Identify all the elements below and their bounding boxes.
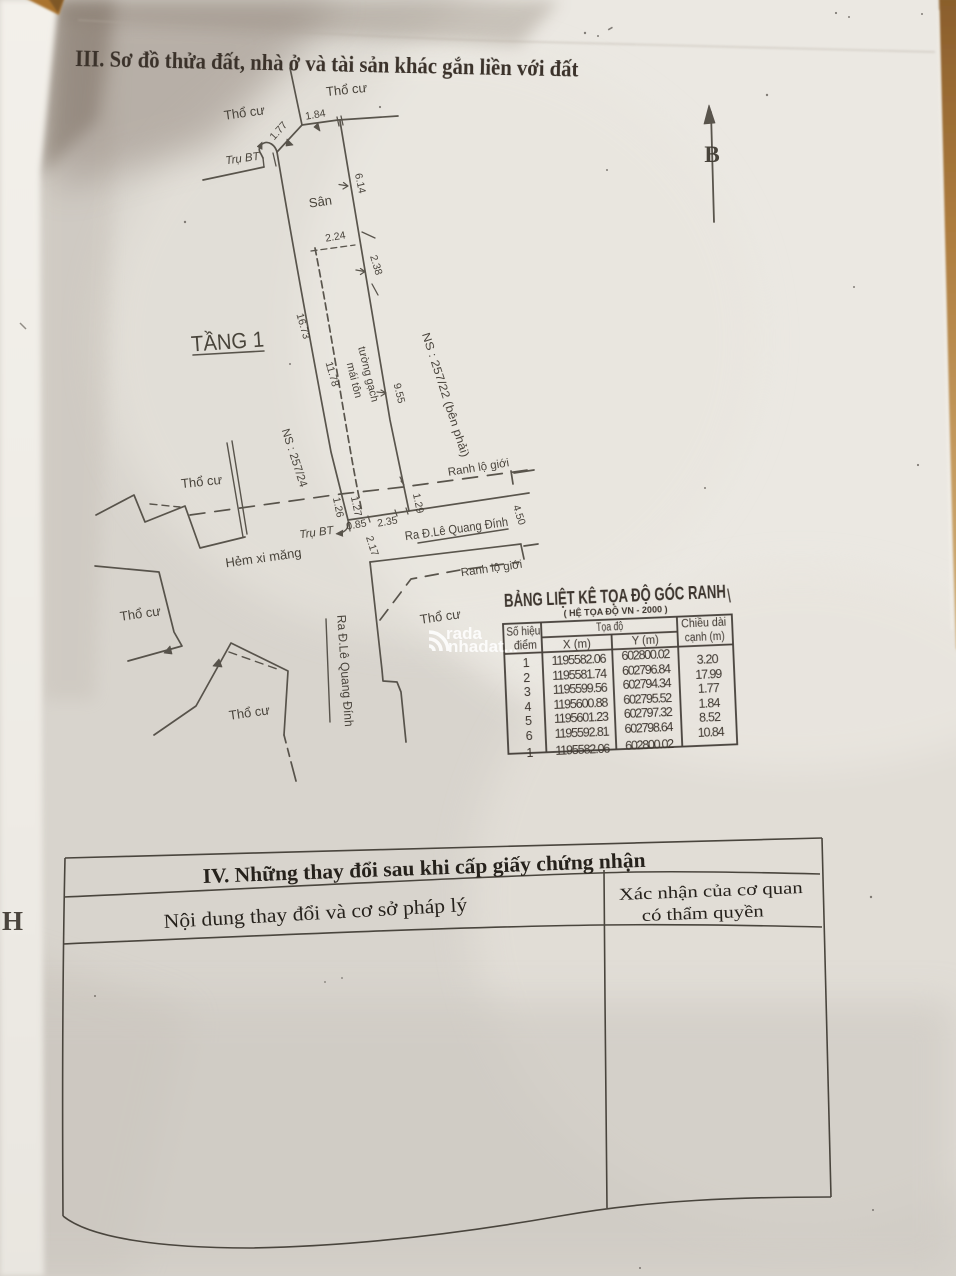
svg-text:1195582.06: 1195582.06: [551, 652, 607, 668]
svg-text:10.84: 10.84: [697, 725, 725, 740]
svg-text:Sân: Sân: [308, 193, 333, 211]
svg-text:8.52: 8.52: [699, 710, 722, 725]
svg-text:1195582.06: 1195582.06: [555, 742, 611, 758]
svg-text:602794.34: 602794.34: [622, 676, 672, 692]
svg-text:17.99: 17.99: [695, 667, 723, 682]
svg-text:1.84: 1.84: [698, 696, 721, 711]
svg-text:3.20: 3.20: [696, 652, 719, 667]
svg-text:1: 1: [526, 746, 534, 760]
svg-text:TẦNG 1: TẦNG 1: [190, 327, 265, 357]
svg-text:602800.02: 602800.02: [621, 647, 671, 663]
svg-text:1195601.23: 1195601.23: [554, 710, 610, 726]
svg-text:nhadat...: nhadat...: [448, 637, 518, 656]
svg-text:1.77: 1.77: [698, 681, 721, 696]
svg-text:602797.32: 602797.32: [624, 705, 674, 721]
svg-text:4: 4: [524, 700, 532, 714]
svg-text:X (m): X (m): [563, 638, 592, 651]
svg-text:Y (m): Y (m): [632, 634, 660, 647]
svg-text:Tọa độ: Tọa độ: [596, 621, 623, 634]
svg-text:B: B: [704, 142, 719, 167]
svg-text:3: 3: [524, 685, 532, 699]
svg-text:H: H: [2, 906, 23, 936]
svg-text:1195599.56: 1195599.56: [553, 681, 609, 697]
svg-text:2: 2: [523, 671, 531, 685]
svg-text:602800.02: 602800.02: [625, 737, 675, 753]
svg-text:6: 6: [525, 729, 533, 743]
svg-text:1: 1: [522, 656, 530, 670]
svg-text:602798.64: 602798.64: [624, 720, 674, 736]
svg-text:5: 5: [525, 714, 533, 728]
svg-text:cạnh (m): cạnh (m): [685, 631, 726, 645]
svg-text:Chiều dài: Chiều dài: [681, 617, 726, 631]
svg-text:1195592.81: 1195592.81: [554, 725, 610, 741]
